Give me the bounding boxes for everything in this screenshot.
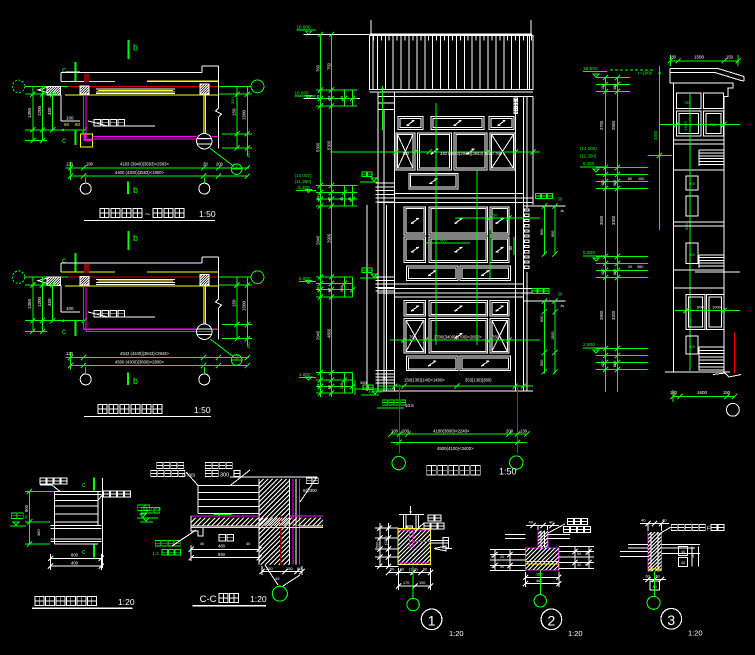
svg-text:150: 150 bbox=[246, 342, 251, 349]
svg-text:60: 60 bbox=[297, 566, 302, 571]
svg-text:35: 35 bbox=[382, 376, 387, 381]
svg-text:360: 360 bbox=[340, 286, 344, 292]
svg-text:1:2: 1:2 bbox=[153, 551, 160, 556]
svg-text:80: 80 bbox=[400, 568, 404, 572]
svg-text:40: 40 bbox=[340, 96, 344, 100]
svg-text:600: 600 bbox=[540, 229, 544, 235]
svg-text:150: 150 bbox=[232, 108, 237, 116]
svg-text:150: 150 bbox=[638, 177, 644, 181]
svg-text:150: 150 bbox=[232, 299, 237, 307]
svg-text:350: 350 bbox=[230, 97, 235, 104]
svg-text:40: 40 bbox=[200, 542, 204, 546]
svg-text:200: 200 bbox=[402, 429, 410, 434]
svg-text:4500 (4300)(3800)<2800>: 4500 (4300)(3800)<2800> bbox=[115, 359, 164, 364]
svg-text:20: 20 bbox=[500, 555, 504, 559]
svg-text:100: 100 bbox=[66, 306, 74, 311]
svg-text:c: c bbox=[62, 136, 66, 145]
svg-text:40: 40 bbox=[641, 518, 646, 523]
svg-text:1500: 1500 bbox=[242, 300, 247, 311]
svg-text:45: 45 bbox=[340, 197, 344, 201]
svg-text:150: 150 bbox=[726, 55, 734, 60]
svg-text:150(130)(140)<1400>: 150(130)(140)<1400> bbox=[404, 378, 445, 383]
svg-text:1350: 1350 bbox=[27, 298, 32, 309]
svg-text:1:50: 1:50 bbox=[199, 209, 216, 219]
svg-text:760: 760 bbox=[495, 151, 503, 156]
svg-text:30: 30 bbox=[328, 385, 332, 389]
svg-text:2: 2 bbox=[548, 613, 556, 629]
svg-text:750: 750 bbox=[327, 62, 332, 70]
svg-text:450: 450 bbox=[47, 107, 52, 115]
svg-text:c: c bbox=[82, 549, 86, 556]
svg-text:1: 1 bbox=[428, 613, 436, 629]
svg-text:1:20: 1:20 bbox=[118, 597, 135, 607]
svg-text:(11.350): (11.350) bbox=[580, 154, 597, 159]
svg-text:450: 450 bbox=[601, 361, 605, 367]
svg-text:2.800: 2.800 bbox=[583, 342, 595, 348]
svg-text:5300: 5300 bbox=[327, 140, 332, 150]
svg-text:120: 120 bbox=[66, 161, 74, 166]
svg-text:130: 130 bbox=[520, 429, 528, 434]
svg-text:750: 750 bbox=[688, 318, 693, 325]
svg-text:c: c bbox=[62, 256, 66, 265]
svg-text:450: 450 bbox=[47, 298, 52, 306]
svg-text:2: 2 bbox=[235, 164, 238, 170]
svg-text:3300: 3300 bbox=[611, 215, 616, 225]
svg-text:600: 600 bbox=[697, 305, 704, 310]
svg-text:10.5: 10.5 bbox=[405, 403, 414, 408]
svg-text:2940: 2940 bbox=[316, 235, 321, 245]
svg-text:150: 150 bbox=[286, 566, 293, 571]
svg-text:5300: 5300 bbox=[316, 142, 321, 152]
svg-text:340 (3943(2943)(3943) 3540: 340 (3943(2943)(3943) 3540 bbox=[440, 151, 494, 156]
svg-text:4943 (4240)(3943)<2943>: 4943 (4240)(3943)<2943> bbox=[120, 351, 169, 356]
svg-text:900: 900 bbox=[613, 180, 617, 186]
svg-text:b: b bbox=[133, 42, 138, 52]
svg-text:40: 40 bbox=[681, 550, 685, 554]
svg-text:30: 30 bbox=[558, 197, 563, 202]
svg-text:1350: 1350 bbox=[27, 107, 32, 118]
svg-text:1200: 1200 bbox=[37, 105, 42, 116]
svg-text:170: 170 bbox=[403, 581, 409, 585]
svg-text:Js: Js bbox=[560, 208, 564, 213]
svg-text:1.800: 1.800 bbox=[299, 372, 311, 377]
svg-text:600: 600 bbox=[540, 316, 544, 322]
svg-text:1500: 1500 bbox=[242, 109, 247, 120]
svg-text:1580: 1580 bbox=[683, 121, 688, 131]
svg-text:60: 60 bbox=[328, 96, 332, 100]
svg-text:~: ~ bbox=[145, 209, 150, 219]
svg-text:50: 50 bbox=[691, 554, 695, 558]
svg-text:180: 180 bbox=[669, 55, 677, 60]
svg-text:1:20: 1:20 bbox=[568, 629, 583, 638]
svg-text:50: 50 bbox=[509, 246, 513, 250]
svg-text:400: 400 bbox=[71, 561, 79, 566]
svg-text:150: 150 bbox=[601, 84, 605, 90]
svg-text:900: 900 bbox=[440, 238, 447, 243]
svg-text:130: 130 bbox=[391, 429, 399, 434]
svg-text:1200: 1200 bbox=[37, 296, 42, 307]
svg-text:c: c bbox=[82, 482, 86, 489]
svg-text:c: c bbox=[62, 65, 66, 74]
svg-text:80: 80 bbox=[328, 288, 332, 292]
svg-text:(14.007): (14.007) bbox=[295, 173, 313, 178]
svg-text:500: 500 bbox=[376, 542, 380, 548]
svg-text:900: 900 bbox=[24, 504, 29, 512]
svg-text:450: 450 bbox=[613, 84, 617, 90]
svg-text:350: 350 bbox=[360, 380, 367, 385]
svg-text:150: 150 bbox=[723, 390, 731, 395]
svg-text:50: 50 bbox=[500, 565, 504, 569]
svg-text:b: b bbox=[133, 233, 138, 243]
svg-text:1600: 1600 bbox=[697, 390, 708, 395]
svg-text:4400 (4300)(3583)<1900>: 4400 (4300)(3583)<1900> bbox=[115, 170, 164, 175]
svg-text:60: 60 bbox=[628, 177, 632, 181]
svg-text:50: 50 bbox=[390, 568, 394, 572]
svg-text:2950: 2950 bbox=[611, 120, 616, 130]
svg-text:2940: 2940 bbox=[316, 330, 321, 340]
svg-text:3200: 3200 bbox=[611, 310, 616, 320]
svg-text:800: 800 bbox=[71, 553, 79, 558]
svg-text:1500: 1500 bbox=[551, 332, 555, 340]
svg-text:150: 150 bbox=[536, 573, 542, 577]
svg-text:1:20: 1:20 bbox=[688, 629, 703, 638]
svg-text:60: 60 bbox=[64, 122, 70, 127]
svg-text:20: 20 bbox=[317, 384, 321, 388]
svg-text:c: c bbox=[62, 327, 66, 336]
svg-text:(14.000): (14.000) bbox=[580, 146, 597, 151]
svg-text:60: 60 bbox=[317, 196, 321, 200]
svg-text:50: 50 bbox=[493, 213, 498, 218]
svg-text:3700(3400)(3700)<2800>: 3700(3400)(3700)<2800> bbox=[434, 335, 482, 340]
svg-text:450: 450 bbox=[601, 180, 605, 186]
svg-text:1:50: 1:50 bbox=[499, 467, 517, 477]
svg-text:300: 300 bbox=[220, 473, 229, 479]
svg-text:2700: 2700 bbox=[599, 120, 604, 130]
svg-text:900: 900 bbox=[689, 253, 695, 257]
svg-text:C-C: C-C bbox=[200, 594, 217, 605]
svg-text:40: 40 bbox=[681, 561, 685, 565]
svg-text:(110): (110) bbox=[409, 568, 418, 572]
svg-text:150: 150 bbox=[246, 151, 251, 158]
svg-text:940: 940 bbox=[218, 552, 226, 557]
svg-text:3: 3 bbox=[667, 612, 675, 628]
svg-text:50: 50 bbox=[577, 552, 581, 556]
svg-text:B: B bbox=[377, 90, 380, 95]
svg-text:8.400: 8.400 bbox=[583, 161, 595, 166]
svg-text:r=1000: r=1000 bbox=[638, 71, 653, 76]
svg-text:40: 40 bbox=[246, 542, 250, 546]
svg-text:360: 360 bbox=[637, 265, 643, 269]
svg-text:100: 100 bbox=[419, 581, 425, 585]
svg-text:50: 50 bbox=[317, 95, 321, 99]
svg-text:900: 900 bbox=[540, 360, 544, 366]
svg-text:2900: 2900 bbox=[327, 233, 332, 243]
svg-text:b: b bbox=[133, 376, 138, 386]
svg-text:900: 900 bbox=[689, 345, 695, 349]
svg-text:4100(3800)<2240>: 4100(3800)<2240> bbox=[433, 429, 470, 434]
svg-text:140: 140 bbox=[340, 383, 344, 389]
svg-text:30: 30 bbox=[558, 292, 563, 297]
svg-text:28: 28 bbox=[203, 161, 208, 166]
svg-text:900: 900 bbox=[551, 231, 555, 237]
svg-text:180: 180 bbox=[86, 161, 94, 166]
svg-text:45: 45 bbox=[275, 576, 280, 581]
svg-text:F: F bbox=[707, 527, 710, 533]
svg-text:760: 760 bbox=[409, 335, 417, 340]
svg-text:1:20: 1:20 bbox=[250, 594, 267, 604]
svg-text:880: 880 bbox=[613, 361, 617, 367]
svg-text:18.800: 18.800 bbox=[297, 25, 311, 30]
svg-text:2900: 2900 bbox=[599, 310, 604, 320]
svg-text:880: 880 bbox=[613, 269, 617, 275]
svg-text:760: 760 bbox=[402, 151, 410, 156]
svg-text:100: 100 bbox=[66, 115, 74, 120]
svg-text:(5700): (5700) bbox=[182, 473, 196, 478]
svg-text:20: 20 bbox=[628, 265, 632, 269]
svg-text:6@300: 6@300 bbox=[303, 488, 318, 493]
svg-text:460: 460 bbox=[536, 579, 542, 583]
svg-text:200: 200 bbox=[216, 161, 224, 166]
svg-text:760: 760 bbox=[492, 335, 500, 340]
svg-text:Js: Js bbox=[560, 303, 564, 308]
svg-text:120: 120 bbox=[66, 351, 74, 356]
svg-text:b: b bbox=[133, 185, 138, 195]
svg-text:450: 450 bbox=[601, 269, 605, 275]
svg-text:1000: 1000 bbox=[712, 305, 722, 310]
svg-text:1:50: 1:50 bbox=[194, 405, 211, 415]
svg-text:(110): (110) bbox=[384, 536, 388, 545]
svg-text:3500: 3500 bbox=[599, 215, 604, 225]
svg-text:50: 50 bbox=[423, 568, 427, 572]
svg-text:60: 60 bbox=[75, 122, 81, 127]
svg-text:180: 180 bbox=[670, 390, 678, 395]
svg-text:1500: 1500 bbox=[694, 55, 705, 60]
svg-text:20: 20 bbox=[317, 287, 321, 291]
svg-text:40: 40 bbox=[348, 197, 352, 201]
svg-text:(11.350): (11.350) bbox=[295, 179, 312, 184]
svg-text:60: 60 bbox=[378, 389, 383, 394]
svg-text:353(130)(380): 353(130)(380) bbox=[465, 378, 492, 383]
svg-text:4800: 4800 bbox=[327, 328, 332, 338]
svg-text:40: 40 bbox=[529, 520, 534, 525]
svg-text:2: 2 bbox=[235, 355, 238, 361]
svg-text:16.800: 16.800 bbox=[295, 91, 309, 96]
svg-text:760: 760 bbox=[316, 64, 321, 72]
svg-text:3300: 3300 bbox=[653, 130, 658, 140]
svg-text:1:20: 1:20 bbox=[449, 629, 464, 638]
svg-text:200: 200 bbox=[506, 429, 514, 434]
svg-text:480: 480 bbox=[218, 544, 226, 549]
svg-text:380: 380 bbox=[36, 529, 41, 536]
svg-text:4500(4100)<3400>: 4500(4100)<3400> bbox=[437, 446, 474, 451]
svg-text:30: 30 bbox=[577, 563, 581, 567]
svg-text:5.800: 5.800 bbox=[583, 250, 595, 256]
svg-text:4183 (3940)(3583)<2583>: 4183 (3940)(3583)<2583> bbox=[120, 161, 169, 166]
svg-text:40: 40 bbox=[328, 197, 332, 201]
